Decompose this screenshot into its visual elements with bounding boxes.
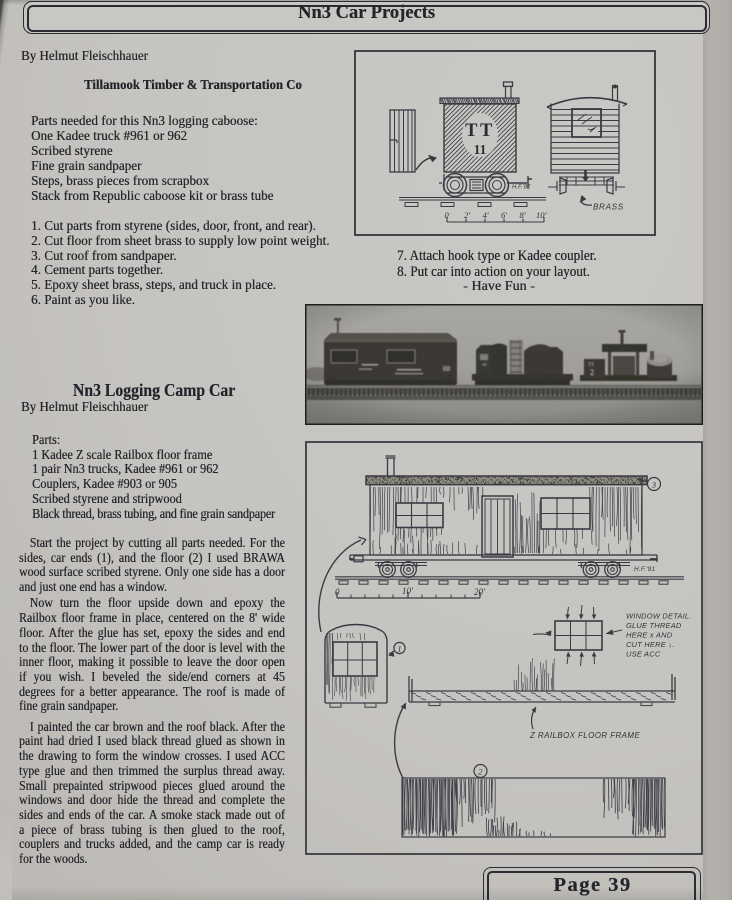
svg-text:Z RAILBOX FLOOR FRAME: Z RAILBOX FLOOR FRAME: [529, 731, 640, 740]
svg-text:H.F.'91: H.F.'91: [634, 566, 655, 573]
svg-text:CUT HERE ↓.: CUT HERE ↓.: [626, 640, 674, 649]
svg-text:HERE x AND: HERE x AND: [626, 631, 673, 640]
svg-text:2': 2': [464, 210, 470, 220]
svg-text:6': 6': [501, 210, 507, 220]
svg-text:GLUE THREAD: GLUE THREAD: [626, 621, 682, 630]
svg-text:2: 2: [478, 767, 483, 777]
svg-text:20': 20': [474, 587, 486, 597]
svg-text:4': 4': [483, 210, 489, 220]
svg-text:11: 11: [474, 142, 487, 157]
svg-text:USE ACC: USE ACC: [626, 650, 661, 659]
svg-text:WINDOW DETAIL.: WINDOW DETAIL.: [626, 612, 692, 621]
svg-text:TT: TT: [465, 121, 495, 141]
svg-text:0: 0: [335, 587, 340, 597]
svg-text:BRASS: BRASS: [593, 203, 624, 212]
svg-text:10': 10': [402, 586, 414, 596]
svg-text:8': 8': [520, 210, 526, 220]
svg-text:H.F.'82: H.F.'82: [512, 185, 531, 191]
svg-text:1: 1: [397, 644, 401, 654]
svg-text:0: 0: [445, 210, 450, 220]
svg-text:3: 3: [651, 480, 656, 490]
svg-text:10': 10': [536, 210, 547, 220]
